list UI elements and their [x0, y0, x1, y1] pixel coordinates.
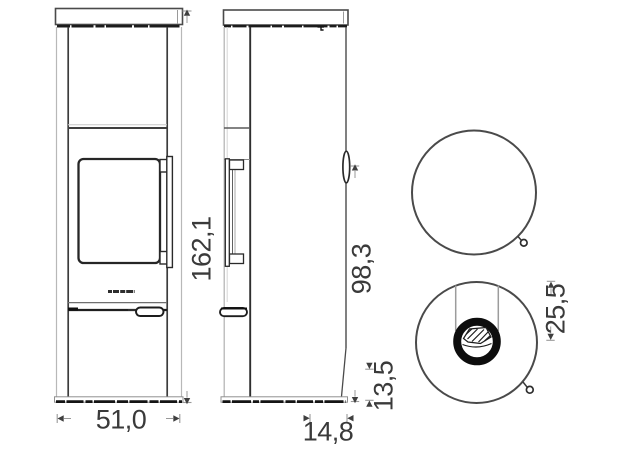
lid-knob	[523, 382, 533, 393]
side-latch	[220, 308, 247, 316]
dim-label-front-height: 162,1	[189, 216, 216, 281]
front-view	[55, 9, 184, 403]
front-ash-lip	[68, 303, 167, 316]
drawing-linework	[0, 0, 624, 460]
side-door-handle	[225, 159, 243, 266]
side-body	[224, 27, 346, 397]
dim-label-front-width: 51,0	[96, 407, 147, 434]
dim-front-height-marks	[183, 10, 192, 405]
top-view-body-circle	[412, 131, 536, 255]
side-base	[221, 397, 348, 402]
front-door-window	[79, 159, 161, 263]
technical-drawing-canvas: 162,1 51,0 98,3 13,5 14,8 25,5	[0, 0, 624, 460]
side-rear-outlet-bump	[343, 151, 350, 183]
side-plate-tab	[318, 27, 325, 30]
top-view-lid-knob	[518, 236, 527, 246]
side-view	[220, 10, 350, 402]
flue-collar-ring	[457, 322, 497, 362]
dim-label-base-height: 13,5	[371, 361, 398, 412]
top-view-upper	[412, 131, 536, 255]
front-base	[55, 397, 184, 402]
front-door-handle	[160, 157, 172, 268]
dim-label-flue-offset: 25,5	[543, 284, 570, 335]
front-top-plate	[56, 9, 183, 25]
dim-label-outlet-depth: 14,8	[303, 419, 354, 446]
side-top-plate	[224, 10, 349, 25]
dim-label-outlet-height: 98,3	[349, 244, 376, 295]
top-view-lower	[416, 282, 537, 403]
